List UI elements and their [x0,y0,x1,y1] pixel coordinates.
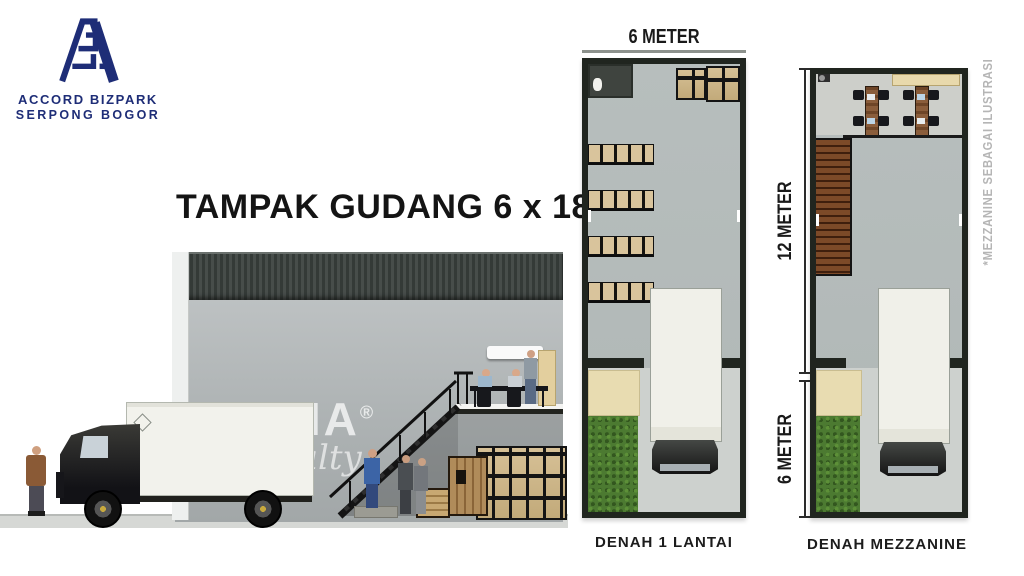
plan1-dimension-line [582,50,746,53]
plan1-crate-row [588,282,654,301]
plan1-toilet-fixture [593,78,602,91]
plan2-chair [853,116,864,126]
brand-location: SERPONG BOGOR [8,108,168,122]
plan2-chair [928,116,939,126]
plan1-width-dimension: 6 METER [597,26,731,49]
plan2-depth-dimension-line [804,68,806,374]
mezzanine-disclaimer-text: *MEZZANINE SEBAGAI ILUSTRASI [981,58,995,265]
plan2-depth-label: 12 METER [775,182,797,261]
crate-label [456,470,466,484]
truck-cargo-box [126,402,314,496]
plan2-chair [928,90,939,100]
plan1-crate-row [588,190,654,209]
plan1-caption: DENAH 1 LANTAI [582,534,746,551]
plan2-front-wall-left [816,358,846,368]
plan1-front-wall-left [588,358,644,368]
worker-head [402,455,410,463]
plan1-pallet-boxes [706,66,740,102]
plan2-laptop [917,118,925,124]
plan2-front-dimension-line [804,380,806,518]
plan2-laptop [867,94,875,100]
plan2-caption: DENAH MEZZANINE [806,536,968,553]
plan1-truck-windshield [660,464,710,471]
plan2-mezzanine-edge [843,135,962,138]
mezzanine-plan [810,68,968,518]
plan2-counter [892,74,960,86]
plan2-stairs [816,138,852,276]
pedestrian-jacket [26,455,46,486]
brochure-canvas: ACCORD BIZPARK SERPONG BOGOR TAMPAK GUDA… [0,0,1024,576]
worker-jeans [366,484,378,508]
plan2-front-dimension: 6 METER [774,379,798,519]
plan2-chair [903,90,914,100]
plan2-paver-tile [816,370,862,416]
truck-front-wheel [84,490,122,528]
plan2-equipment-knob [819,75,825,81]
plan2-truck-box-topview [878,288,950,444]
truck-rear-wheel [244,490,282,528]
plan1-grass [588,416,638,512]
plan2-depth-dimension: 12 METER [774,141,798,301]
worker-coat [414,466,428,491]
pedestrian-head [32,446,41,455]
plan2-grass [816,416,860,512]
worker-pants [416,491,426,514]
plan2-chair [903,116,914,126]
brand-name: ACCORD BIZPARK [8,92,168,107]
plan1-truck-box-topview [650,288,722,442]
pedestrian-pants [29,486,44,512]
brand-logo: ACCORD BIZPARK SERPONG BOGOR [8,8,168,120]
page-title: TAMPAK GUDANG 6 x 18 [176,188,591,227]
plan1-door-notch [588,210,591,222]
plan2-front-label: 6 METER [775,414,797,484]
worker-pants [400,490,411,514]
plan2-chair [853,90,864,100]
mezzanine-disclaimer: *MEZZANINE SEBAGAI ILUSTRASI [974,42,1002,282]
plan2-truck-windshield [888,466,938,473]
worker-jacket [364,458,380,484]
pedestrian-shoes [28,511,45,516]
plan2-chair [878,116,889,126]
worker-head [368,449,377,458]
truck-window [80,436,108,458]
worker-head [418,458,426,466]
plan2-door-notch [816,214,819,226]
wooden-crate-large [448,456,488,516]
plan2-laptop [917,94,925,100]
plan1-door-notch [737,210,740,222]
plan1-pallet-boxes [676,68,706,100]
plan1-paver-tile [588,370,640,416]
plan1-crate-row [588,144,654,163]
plan2-laptop [867,118,875,124]
worker-coat [398,463,413,490]
plan2-front-wall-right [950,358,962,368]
plan2-door-notch [959,214,962,226]
floor1-plan [582,58,746,518]
plan2-chair [878,90,889,100]
plan1-crate-row [588,236,654,255]
accord-a-monogram-icon [54,10,122,90]
truck-bumper [56,472,64,498]
